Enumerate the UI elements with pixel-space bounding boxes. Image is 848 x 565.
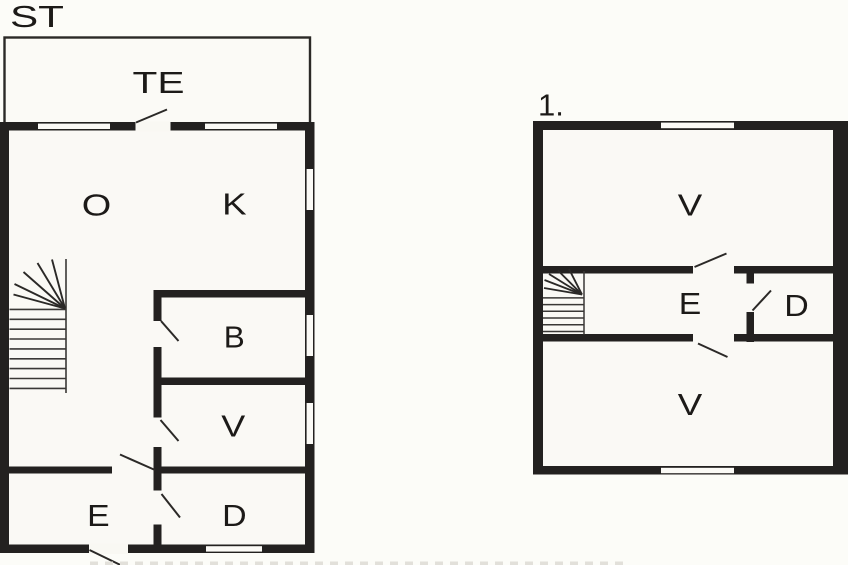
svg-text:E: E xyxy=(87,498,110,533)
svg-text:D: D xyxy=(222,498,247,533)
svg-text:O: O xyxy=(82,188,112,223)
svg-text:K: K xyxy=(222,187,247,222)
svg-text:V: V xyxy=(678,188,703,223)
svg-text:B: B xyxy=(224,320,245,355)
svg-text:V: V xyxy=(221,409,245,444)
svg-text:V: V xyxy=(678,387,703,422)
svg-text:ST: ST xyxy=(10,0,64,34)
svg-text:1.: 1. xyxy=(538,88,564,123)
svg-text:TE: TE xyxy=(133,65,185,100)
svg-text:D: D xyxy=(784,288,809,323)
svg-text:E: E xyxy=(679,286,702,321)
